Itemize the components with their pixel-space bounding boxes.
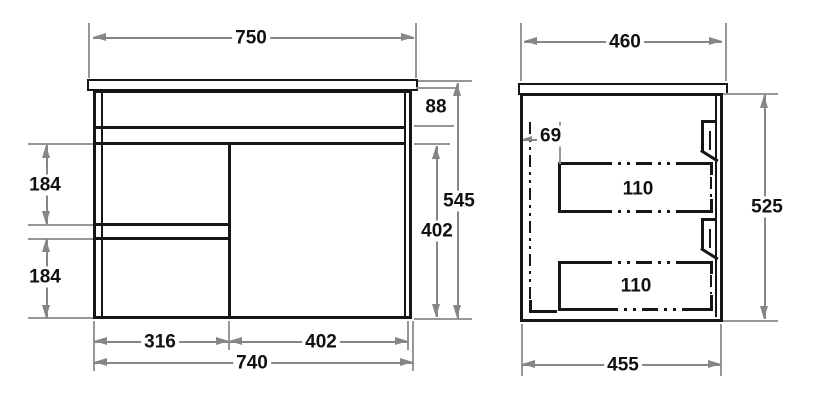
dim-arrowhead — [432, 146, 440, 159]
dim-label-316: 316 — [141, 332, 179, 353]
side-upper-handle — [701, 120, 704, 152]
side-lower-drawer-front-stub — [710, 261, 713, 274]
dim-arrowhead — [432, 304, 440, 317]
extension-line — [28, 143, 93, 145]
dim-arrowhead — [453, 305, 461, 318]
dim-arrowhead — [229, 337, 242, 345]
side-upper-drawer-front-stub — [710, 162, 713, 175]
side-back-hidden-line-corner — [529, 310, 557, 313]
side-front-panel-inner-line — [715, 96, 717, 317]
side-back-hidden-line — [529, 122, 531, 300]
extension-line — [28, 317, 93, 319]
side-lower-drawer-top — [558, 261, 596, 264]
side-upper-drawer-bottom — [682, 210, 713, 213]
dim-label-88: 88 — [422, 97, 449, 118]
front-top-band-bottom-line — [96, 126, 406, 129]
dim-label-740: 740 — [233, 353, 271, 374]
dim-label-460: 460 — [606, 32, 644, 53]
side-lower-drawer-bottom — [682, 308, 713, 311]
extension-line — [415, 23, 417, 78]
extension-line — [28, 224, 93, 226]
front-door-drawer-divider — [228, 144, 231, 319]
extension-line — [414, 143, 450, 145]
dim-arrowhead — [94, 358, 107, 366]
side-upper-drawer-front-hidden — [710, 177, 712, 198]
extension-line — [407, 321, 409, 350]
dim-label-455: 455 — [604, 355, 642, 376]
dim-arrowhead — [42, 145, 50, 158]
side-lower-drawer-bottom — [558, 308, 602, 311]
dim-arrowhead — [42, 211, 50, 224]
dim-label-545: 545 — [440, 191, 478, 212]
dim-label-184-lower: 184 — [26, 267, 64, 288]
dim-arrowhead — [42, 305, 50, 318]
side-upper-drawer-top-phantom — [596, 162, 682, 165]
dim-label-402-height: 402 — [418, 221, 456, 242]
side-lower-drawer-bottom-phantom — [602, 308, 682, 311]
front-lower-fronts-top-line — [96, 142, 406, 145]
side-lower-drawer-top — [682, 261, 713, 264]
extension-line — [725, 23, 727, 81]
side-upper-drawer-top — [682, 162, 713, 165]
extension-line — [418, 80, 472, 82]
dim-arrowhead — [708, 360, 721, 368]
side-lower-handle — [701, 218, 704, 250]
technical-drawing-canvas: 750 88 545 402 184 184 316 402 740 — [0, 0, 815, 401]
side-lower-drawer-front-hidden — [710, 275, 712, 294]
front-cabinet-body — [93, 90, 412, 319]
extension-line — [521, 324, 523, 376]
extension-line — [228, 321, 230, 350]
dim-arrowhead — [522, 360, 535, 368]
dim-arrowhead — [401, 33, 414, 41]
side-lower-handle — [709, 229, 711, 248]
extension-line — [416, 87, 458, 89]
dim-label-184-upper: 184 — [26, 175, 64, 196]
dim-arrowhead — [216, 337, 229, 345]
side-upper-drawer-bottom — [558, 210, 596, 213]
extension-line — [720, 324, 722, 376]
dim-arrowhead — [524, 37, 537, 45]
front-drawer-gap-lower-line — [96, 237, 229, 240]
side-upper-drawer-front-stub — [710, 199, 713, 213]
dim-arrowhead — [93, 33, 106, 41]
extension-line — [414, 125, 454, 127]
dim-arrowhead — [400, 358, 413, 366]
dim-label-110-lower: 110 — [618, 276, 655, 297]
extension-line — [414, 318, 472, 320]
extension-line — [520, 23, 522, 81]
extension-line — [723, 320, 778, 322]
dim-arrowhead — [42, 239, 50, 252]
dim-arrowhead — [709, 37, 722, 45]
side-upper-drawer-back — [558, 162, 561, 213]
side-upper-drawer-bottom-phantom — [596, 210, 682, 213]
extension-line — [88, 23, 90, 78]
dim-arrowhead — [453, 83, 461, 96]
side-lower-drawer-front-stub — [710, 295, 713, 310]
dim-arrowhead — [94, 337, 107, 345]
dim-arrowhead — [760, 95, 768, 108]
extension-line — [723, 93, 778, 95]
dim-label-750: 750 — [232, 28, 270, 49]
dim-arrowhead — [395, 337, 408, 345]
side-lower-drawer-top-phantom — [596, 261, 682, 264]
dim-label-69: 69 — [537, 126, 564, 147]
dim-arrowhead — [760, 306, 768, 319]
side-upper-handle — [709, 131, 711, 150]
dim-arrowhead — [523, 136, 532, 142]
dim-label-110-upper: 110 — [620, 179, 657, 200]
extension-line — [28, 238, 93, 240]
dim-label-525: 525 — [748, 197, 786, 218]
front-drawer-gap-upper-line — [96, 223, 229, 226]
side-upper-drawer-top — [558, 162, 596, 165]
dim-label-402-width: 402 — [302, 332, 340, 353]
side-lower-drawer-back — [558, 261, 561, 311]
